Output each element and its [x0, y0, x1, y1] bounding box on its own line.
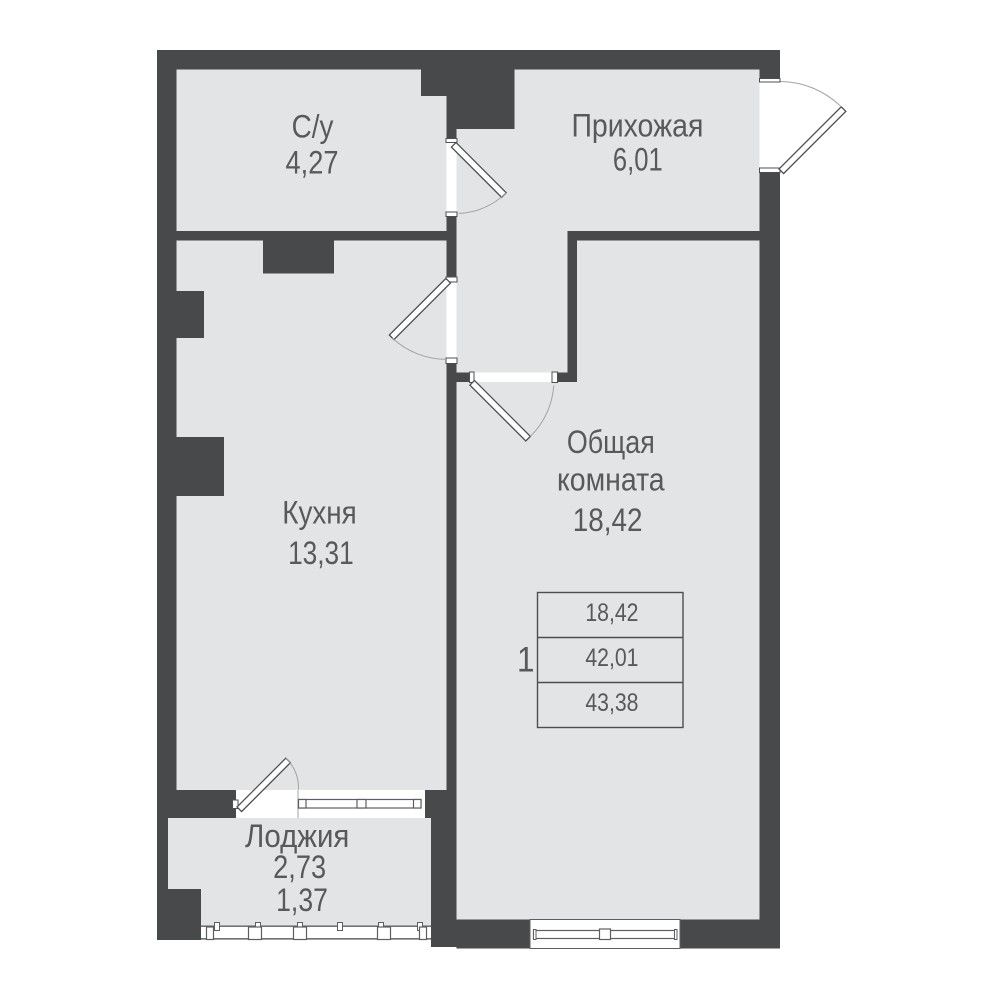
svg-text:С/у: С/у	[292, 110, 334, 145]
svg-text:Общая: Общая	[567, 425, 655, 461]
svg-text:18,42: 18,42	[585, 598, 638, 626]
svg-text:1: 1	[517, 641, 535, 680]
svg-text:Кухня: Кухня	[282, 496, 356, 531]
svg-text:18,42: 18,42	[573, 503, 643, 538]
svg-text:2,73: 2,73	[273, 850, 326, 886]
svg-text:Лоджия: Лоджия	[245, 818, 349, 854]
svg-text:Прихожая: Прихожая	[571, 109, 703, 144]
svg-text:43,38: 43,38	[585, 688, 638, 716]
svg-text:42,01: 42,01	[585, 643, 638, 671]
svg-text:6,01: 6,01	[613, 143, 663, 178]
svg-text:комната: комната	[557, 463, 665, 498]
svg-text:13,31: 13,31	[288, 537, 354, 572]
svg-text:4,27: 4,27	[286, 145, 339, 181]
svg-text:1,37: 1,37	[276, 883, 328, 919]
